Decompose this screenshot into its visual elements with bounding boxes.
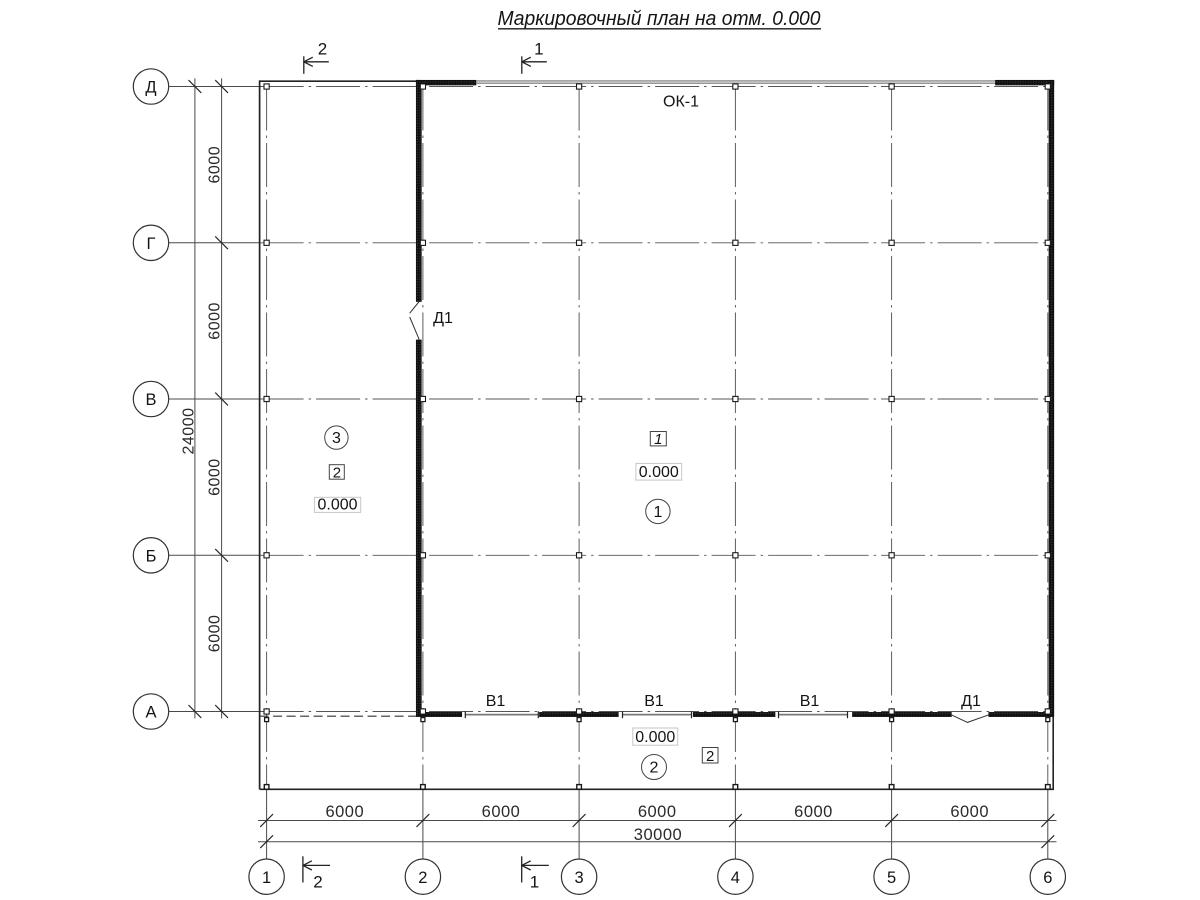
svg-text:В1: В1 <box>644 693 664 710</box>
svg-text:3: 3 <box>575 869 584 887</box>
svg-text:2: 2 <box>706 748 714 765</box>
svg-text:1: 1 <box>534 40 543 59</box>
svg-text:Б: Б <box>146 547 157 565</box>
svg-text:5: 5 <box>887 869 896 887</box>
svg-text:24000: 24000 <box>180 408 197 455</box>
svg-text:6000: 6000 <box>325 803 364 821</box>
svg-text:Маркировочный план на отм. 0.0: Маркировочный план на отм. 0.000 <box>498 7 822 30</box>
svg-text:ОК-1: ОК-1 <box>663 94 699 111</box>
svg-text:3: 3 <box>332 430 341 447</box>
svg-text:0.000: 0.000 <box>635 729 675 746</box>
svg-text:Г: Г <box>147 235 156 253</box>
svg-text:6000: 6000 <box>950 803 989 821</box>
svg-text:0.000: 0.000 <box>317 497 357 514</box>
svg-text:1: 1 <box>530 872 539 891</box>
svg-text:2: 2 <box>333 465 341 482</box>
svg-text:В1: В1 <box>800 693 820 710</box>
svg-text:6000: 6000 <box>207 615 224 653</box>
svg-text:6000: 6000 <box>482 803 521 821</box>
svg-text:4: 4 <box>731 869 740 887</box>
svg-text:В: В <box>145 391 156 409</box>
svg-text:2: 2 <box>318 40 327 59</box>
svg-text:1: 1 <box>653 504 662 521</box>
svg-text:6000: 6000 <box>207 146 224 184</box>
svg-text:2: 2 <box>313 872 322 891</box>
svg-text:30000: 30000 <box>634 826 682 844</box>
svg-text:А: А <box>145 704 156 722</box>
svg-text:В1: В1 <box>486 693 506 710</box>
svg-text:6000: 6000 <box>207 458 224 496</box>
svg-text:6000: 6000 <box>207 302 224 340</box>
svg-text:6: 6 <box>1043 869 1052 887</box>
svg-text:2: 2 <box>418 869 427 887</box>
svg-text:1: 1 <box>262 869 271 887</box>
svg-text:2: 2 <box>650 760 659 777</box>
svg-text:Д1: Д1 <box>961 693 981 710</box>
svg-text:6000: 6000 <box>638 803 677 821</box>
svg-text:Д1: Д1 <box>433 310 453 327</box>
svg-text:0.000: 0.000 <box>639 464 679 481</box>
svg-text:6000: 6000 <box>794 803 833 821</box>
svg-text:Д: Д <box>145 79 156 97</box>
svg-text:1: 1 <box>654 431 662 448</box>
